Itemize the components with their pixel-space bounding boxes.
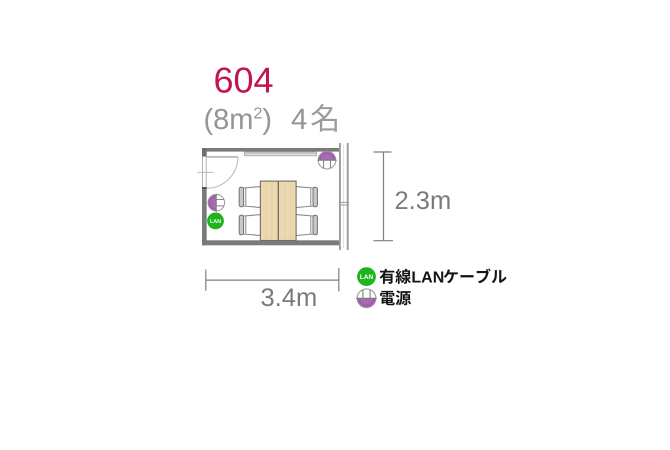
svg-text:604: 604 bbox=[214, 60, 274, 101]
svg-text:LAN: LAN bbox=[210, 219, 221, 225]
svg-text:LAN: LAN bbox=[360, 274, 374, 281]
svg-text:2.3m: 2.3m bbox=[395, 187, 452, 215]
svg-text:(8m2): (8m2) bbox=[204, 104, 273, 136]
svg-text:3.4m: 3.4m bbox=[261, 284, 318, 312]
svg-text:4: 4 bbox=[291, 103, 307, 136]
svg-text:LAN: LAN bbox=[411, 269, 444, 286]
